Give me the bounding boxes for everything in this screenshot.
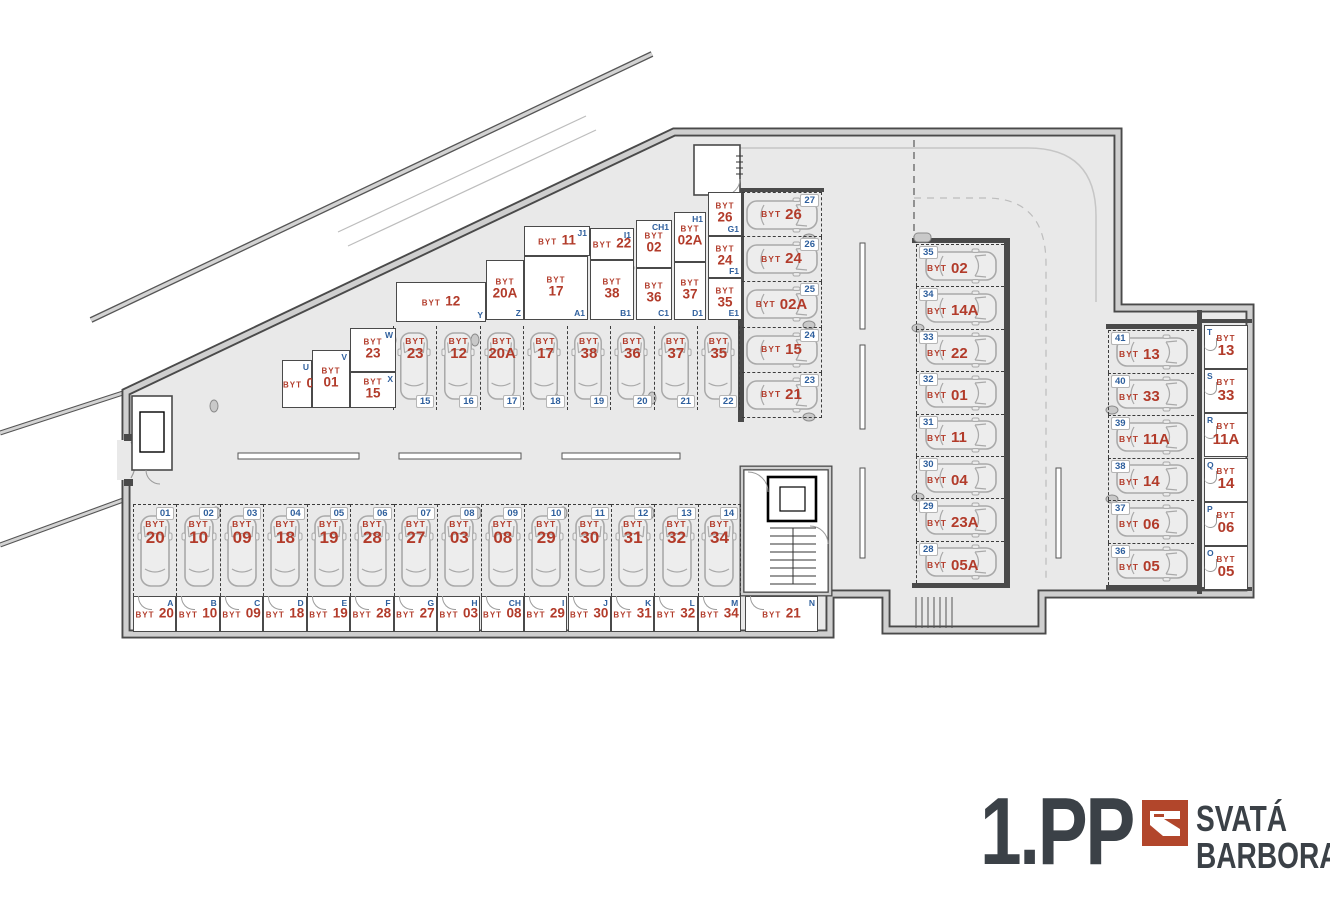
- cellar-room: D1 BYT 37: [674, 262, 706, 320]
- unit-label: BYT 02A: [675, 226, 705, 249]
- room-letter: CH1: [652, 222, 669, 232]
- cellar-room: Y BYT 12: [396, 282, 486, 322]
- brand-mark-icon: [1142, 800, 1188, 846]
- room-letter: D1: [692, 308, 703, 318]
- room-letter: C1: [658, 308, 669, 318]
- brand-logo: SVATÁ BARBORA: [1142, 800, 1330, 874]
- cellar-room: V BYT 01: [312, 350, 350, 408]
- cellar-room: H1 BYT 02A: [674, 212, 706, 262]
- cellar-room: CH1 BYT 02: [636, 220, 672, 268]
- unit-label: BYT 35: [709, 288, 741, 311]
- cellar-room: J1 BYT 11: [524, 226, 590, 256]
- unit-label: BYT 26: [709, 203, 741, 226]
- room-letter: Y: [477, 310, 483, 320]
- cellar-room: I1 BYT 22: [590, 228, 634, 260]
- unit-label: BYT 02: [637, 233, 671, 256]
- unit-label: BYT 17: [525, 277, 587, 300]
- cellar-room: U BYT 04: [282, 360, 312, 408]
- room-letter: A1: [574, 308, 585, 318]
- cellar-room: Z BYT 20A: [486, 260, 524, 320]
- brand-name: SVATÁ BARBORA: [1196, 800, 1330, 874]
- cellar-room: G1 BYT 26: [708, 192, 742, 236]
- unit-label: BYT 22: [591, 236, 633, 253]
- unit-label: BYT 12: [397, 294, 485, 311]
- cellar-room: W BYT 23: [350, 328, 396, 372]
- unit-label: BYT 11: [525, 233, 589, 250]
- unit-label: BYT 24: [709, 246, 741, 269]
- cellar-room: X BYT 15: [350, 372, 396, 408]
- room-letter: Z: [516, 308, 521, 318]
- unit-label: BYT 04: [283, 376, 311, 393]
- unit-label: BYT 23: [351, 339, 395, 362]
- unit-label: BYT 01: [313, 368, 349, 391]
- floorplan-canvas: 01 BYT 20 02 BYT 10 03: [0, 0, 1330, 920]
- cellar-room: F1 BYT 24: [708, 236, 742, 278]
- room-letter: B1: [620, 308, 631, 318]
- cellar-room: C1 BYT 36: [636, 268, 672, 320]
- cellar-room: E1 BYT 35: [708, 278, 742, 320]
- room-letter: G1: [728, 224, 739, 234]
- room-letter: H1: [692, 214, 703, 224]
- unit-label: BYT 37: [675, 280, 705, 303]
- unit-label: BYT 38: [591, 279, 633, 302]
- room-letter: V: [341, 352, 347, 362]
- cellar-room: B1 BYT 38: [590, 260, 634, 320]
- room-letter: U: [303, 362, 309, 372]
- unit-label: BYT 15: [351, 379, 395, 402]
- cellar-room: A1 BYT 17: [524, 256, 588, 320]
- unit-label: BYT 20A: [487, 279, 523, 302]
- unit-label: BYT 36: [637, 283, 671, 306]
